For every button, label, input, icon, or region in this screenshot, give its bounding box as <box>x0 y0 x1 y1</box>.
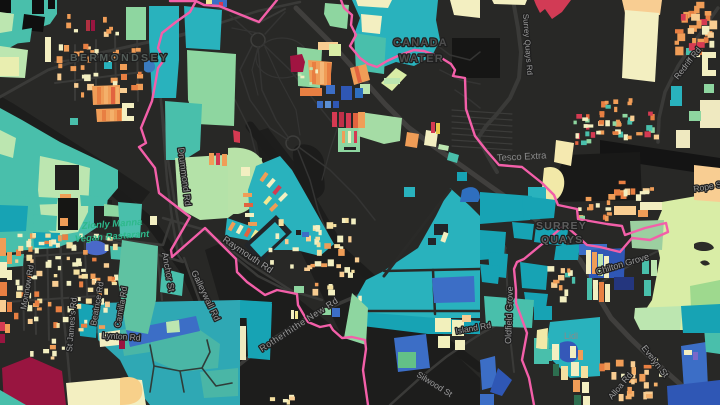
svg-text:Oldfield Grove: Oldfield Grove <box>503 286 515 344</box>
svg-text:BERMONDSEY: BERMONDSEY <box>70 52 169 64</box>
svg-text:CANADA: CANADA <box>393 37 448 49</box>
svg-text:WATER: WATER <box>399 53 444 65</box>
svg-text:QUAYS: QUAYS <box>541 234 583 246</box>
svg-text:Lidl: Lidl <box>564 331 578 341</box>
svg-text:SURREY: SURREY <box>536 220 587 232</box>
